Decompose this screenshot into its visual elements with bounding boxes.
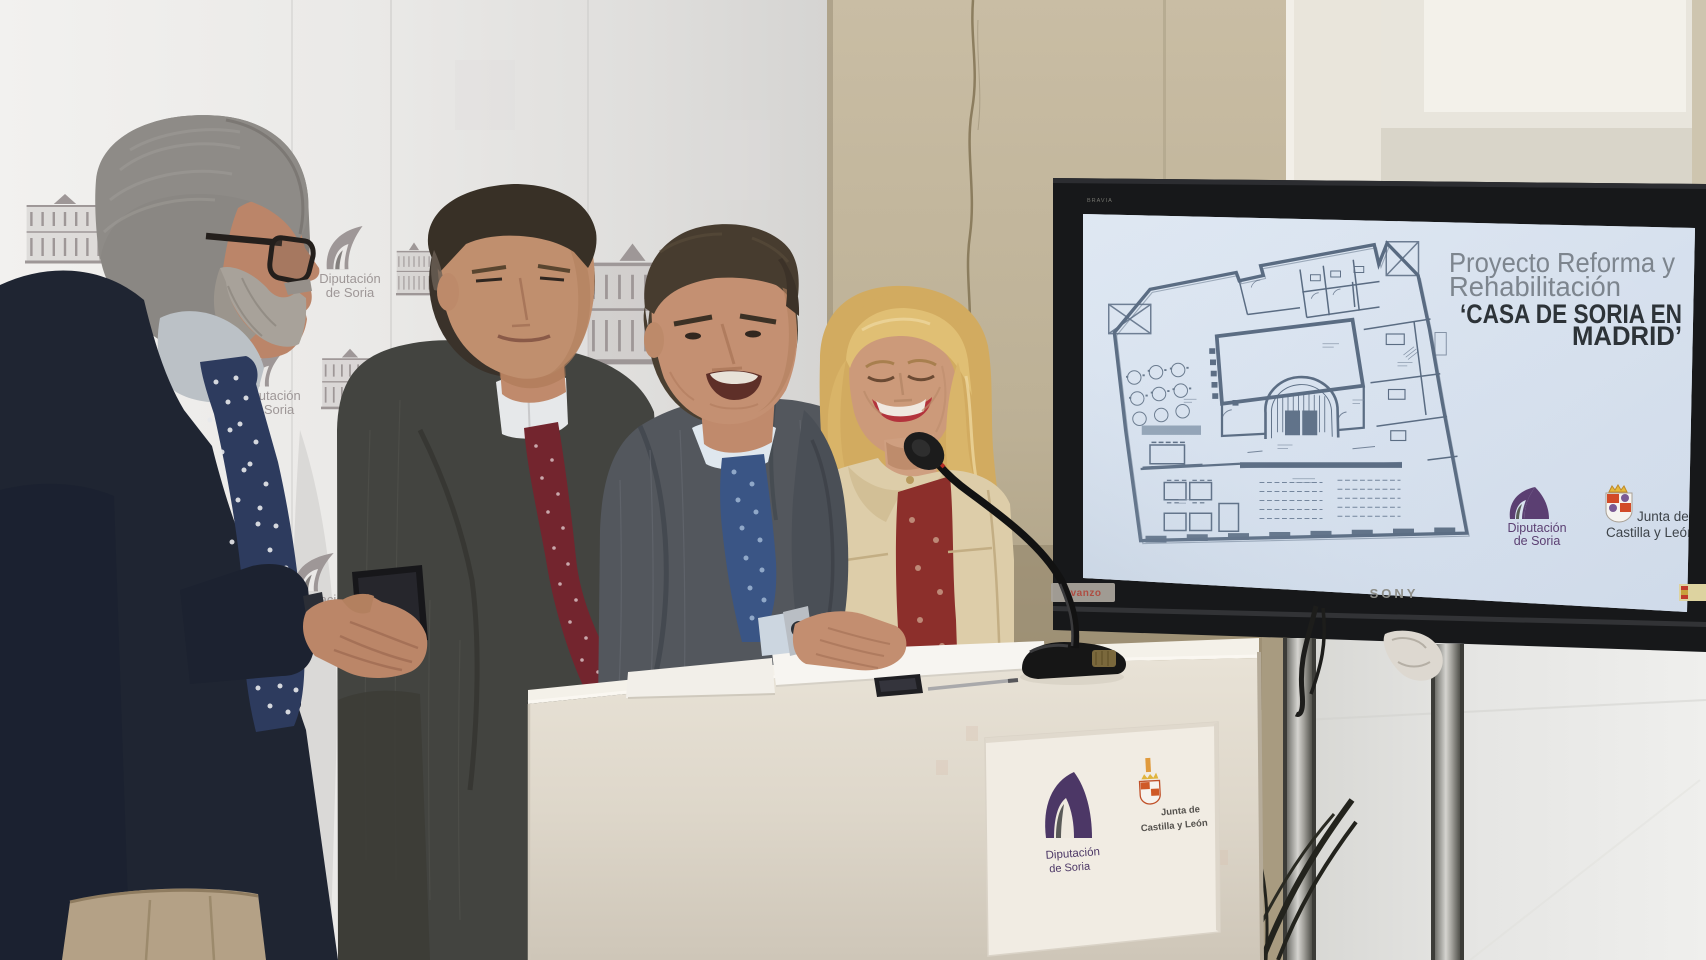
svg-text:SONY: SONY [1370,586,1419,601]
svg-text:BRAVIA: BRAVIA [1087,198,1113,204]
svg-text:Rehabilitación: Rehabilitación [1449,271,1621,302]
svg-text:de Soria: de Soria [326,285,375,300]
svg-text:Castilla y León: Castilla y León [1606,525,1695,540]
svg-text:Diputación: Diputación [319,271,380,286]
svg-text:MADRID’: MADRID’ [1572,321,1682,351]
svg-text:Junta de: Junta de [1637,509,1689,524]
svg-text:Diputación: Diputación [1507,521,1566,535]
svg-text:de Soria: de Soria [1514,534,1561,548]
